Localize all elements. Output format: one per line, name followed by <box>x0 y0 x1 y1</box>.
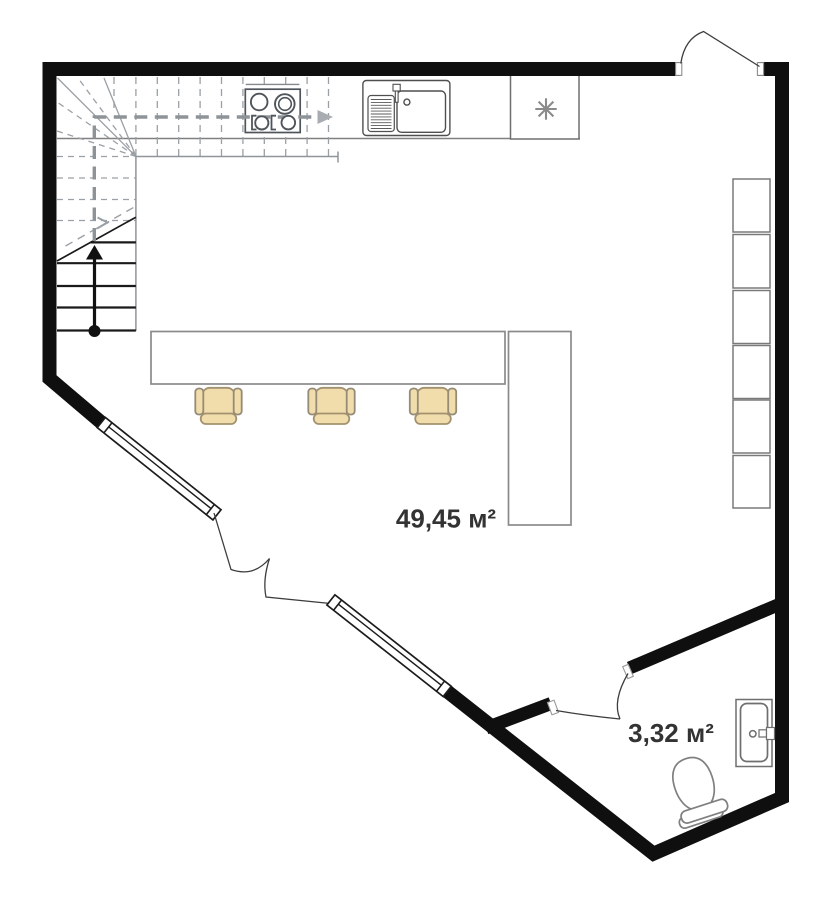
svg-text:3,32 м²: 3,32 м² <box>628 718 714 748</box>
svg-text:49,45 м²: 49,45 м² <box>396 504 497 534</box>
